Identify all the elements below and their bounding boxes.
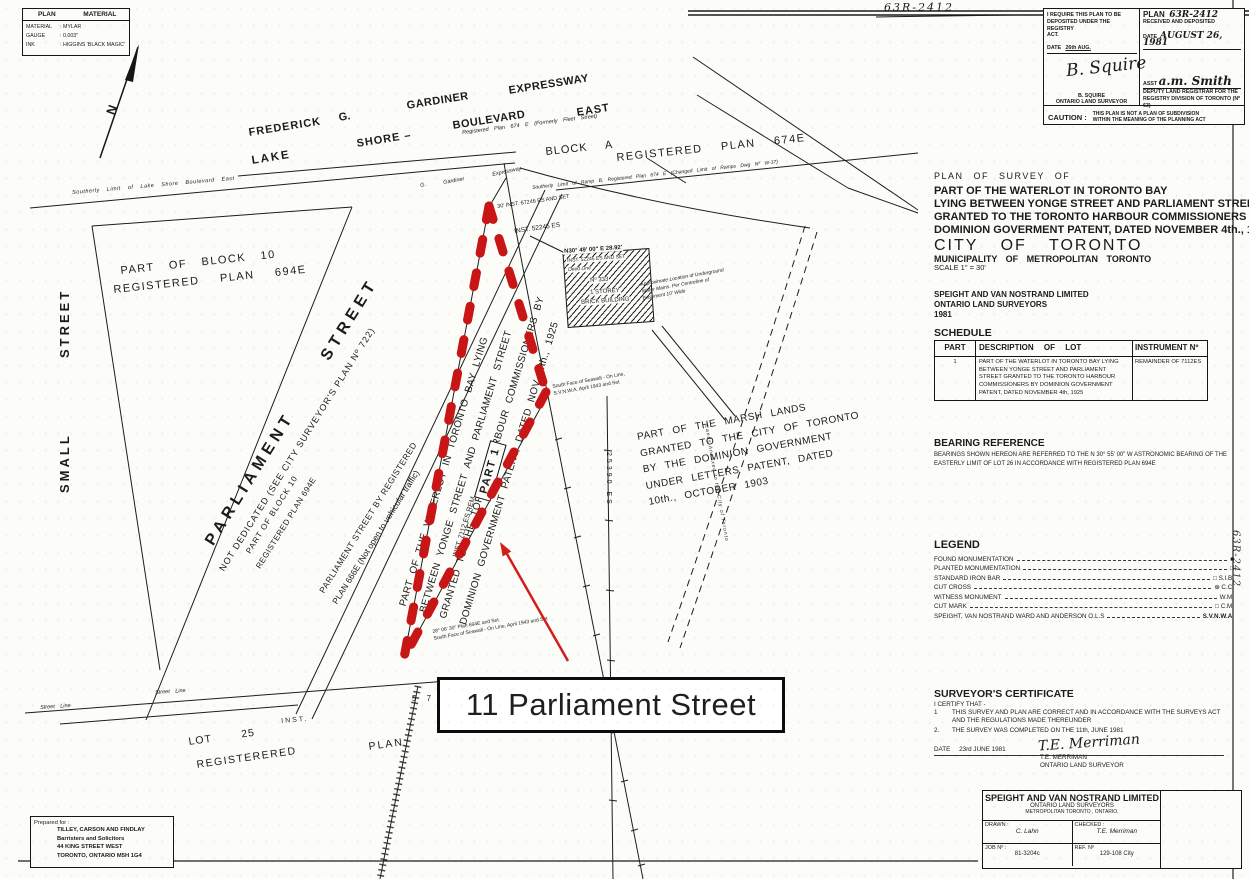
parcel-highlight-outline [404, 206, 546, 658]
callout-arrow [500, 542, 568, 661]
address-callout-label: 11 Parliament Street [466, 687, 756, 723]
address-callout-box: 11 Parliament Street [437, 677, 785, 733]
survey-plan-sheet: FREDERICK G. GARDINER EXPRESSWAY LAKE SH… [0, 0, 1249, 879]
highlight-overlay-svg [0, 0, 1249, 879]
